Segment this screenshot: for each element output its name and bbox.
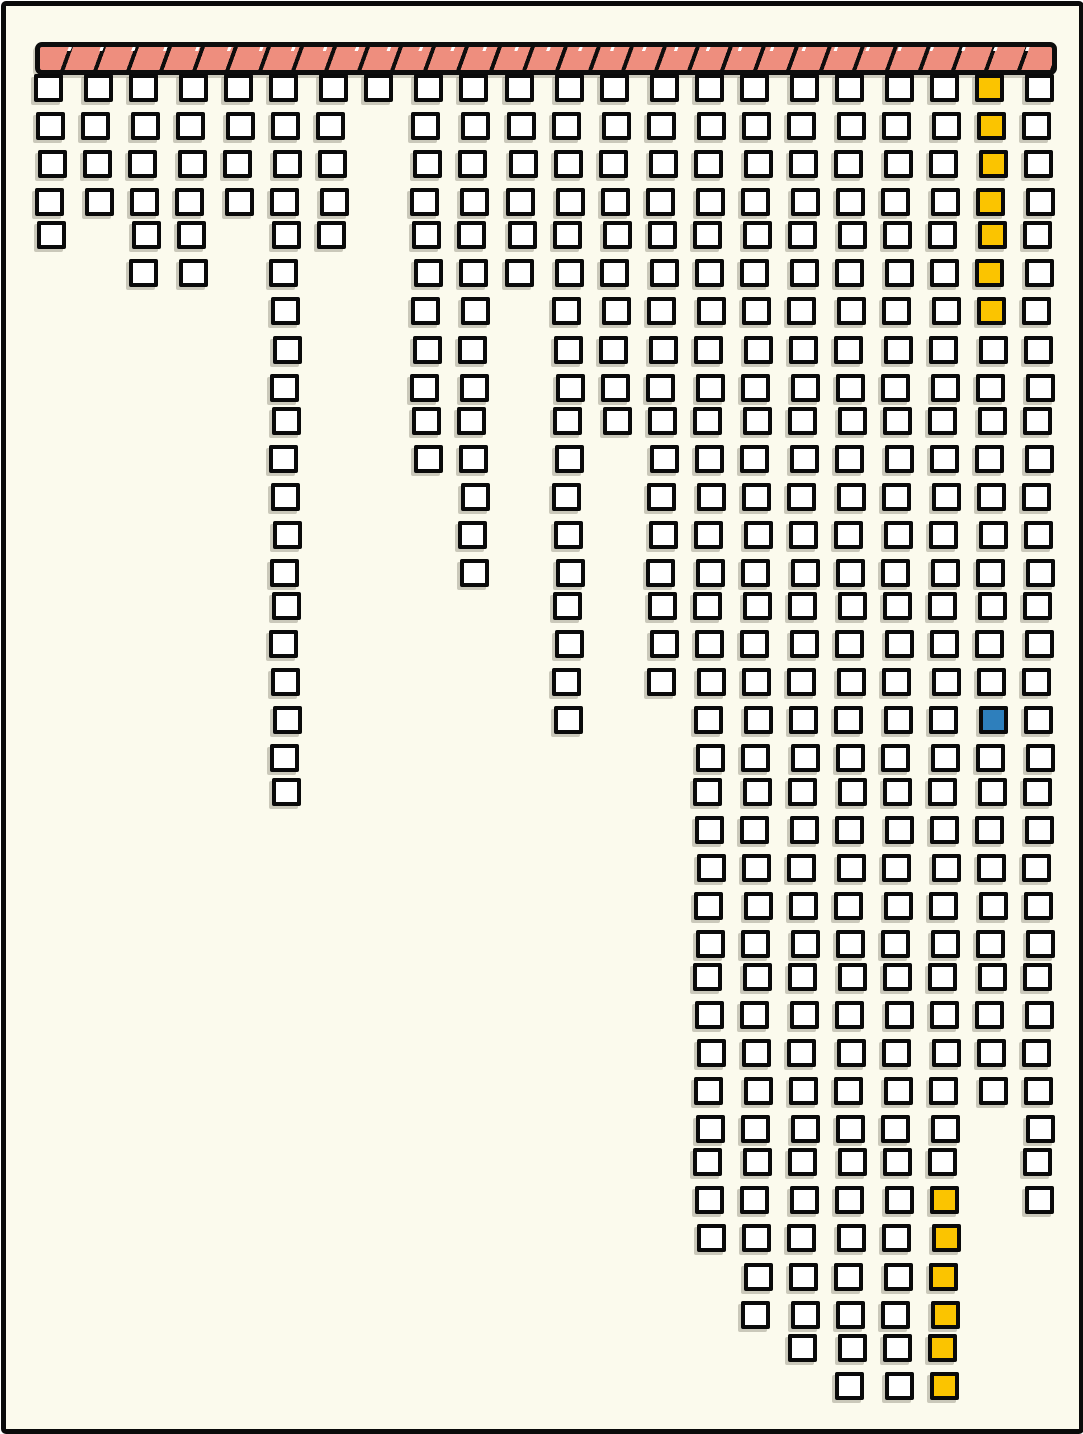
grid-square-yellow bbox=[931, 1301, 960, 1329]
grid-square bbox=[1025, 74, 1054, 102]
grid-square bbox=[412, 407, 441, 435]
grid-square-yellow bbox=[979, 150, 1008, 178]
grid-square bbox=[1026, 374, 1055, 402]
grid-square bbox=[1026, 188, 1055, 216]
grid-square bbox=[554, 150, 583, 178]
grid-square bbox=[977, 668, 1006, 696]
grid-square bbox=[741, 744, 770, 772]
grid-square bbox=[414, 445, 443, 473]
grid-square bbox=[457, 221, 486, 249]
grid-square bbox=[1023, 221, 1052, 249]
grid-square bbox=[697, 1039, 726, 1067]
grid-square bbox=[697, 112, 726, 140]
grid-square bbox=[460, 374, 489, 402]
grid-square bbox=[646, 374, 675, 402]
grid-square bbox=[1025, 1001, 1054, 1029]
grid-square bbox=[693, 963, 722, 991]
grid-square bbox=[882, 112, 911, 140]
grid-square bbox=[928, 1148, 957, 1176]
grid-square bbox=[1024, 336, 1053, 364]
grid-square bbox=[931, 559, 960, 587]
grid-square-yellow bbox=[930, 1186, 959, 1214]
striped-progress-bar bbox=[35, 42, 1057, 75]
grid-square bbox=[976, 744, 1005, 772]
grid-square bbox=[884, 336, 913, 364]
grid-square bbox=[697, 483, 726, 511]
grid-square bbox=[458, 521, 487, 549]
grid-square bbox=[835, 816, 864, 844]
grid-square bbox=[1026, 930, 1055, 958]
grid-square bbox=[272, 221, 301, 249]
grid-square bbox=[459, 445, 488, 473]
grid-square bbox=[931, 930, 960, 958]
grid-square bbox=[837, 112, 866, 140]
grid-square bbox=[552, 483, 581, 511]
grid-square bbox=[836, 559, 865, 587]
grid-square bbox=[881, 188, 910, 216]
grid-square bbox=[929, 336, 958, 364]
grid-square bbox=[884, 1263, 913, 1291]
grid-square bbox=[555, 630, 584, 658]
grid-square bbox=[457, 407, 486, 435]
grid-square bbox=[932, 112, 961, 140]
grid-square bbox=[835, 74, 864, 102]
grid-square bbox=[273, 336, 302, 364]
grid-square bbox=[932, 1039, 961, 1067]
grid-square bbox=[319, 74, 348, 102]
grid-square bbox=[930, 259, 959, 287]
grid-square bbox=[788, 221, 817, 249]
grid-square bbox=[884, 521, 913, 549]
grid-square bbox=[694, 521, 723, 549]
grid-square bbox=[742, 1039, 771, 1067]
grid-square bbox=[650, 259, 679, 287]
grid-square bbox=[885, 1186, 914, 1214]
grid-square bbox=[647, 112, 676, 140]
grid-square bbox=[1022, 112, 1051, 140]
grid-square bbox=[271, 483, 300, 511]
grid-square bbox=[740, 1186, 769, 1214]
grid-square bbox=[1022, 483, 1051, 511]
grid-square bbox=[928, 778, 957, 806]
grid-square bbox=[603, 221, 632, 249]
grid-square bbox=[743, 778, 772, 806]
grid-square bbox=[790, 630, 819, 658]
grid-square bbox=[1024, 1077, 1053, 1105]
grid-square bbox=[836, 1115, 865, 1143]
grid-square bbox=[459, 259, 488, 287]
grid-square bbox=[647, 668, 676, 696]
grid-square bbox=[978, 778, 1007, 806]
grid-square bbox=[459, 74, 488, 102]
grid-square bbox=[35, 188, 64, 216]
grid-square bbox=[791, 930, 820, 958]
grid-square bbox=[837, 668, 866, 696]
grid-square bbox=[882, 668, 911, 696]
grid-square bbox=[1022, 668, 1051, 696]
grid-square bbox=[412, 221, 441, 249]
grid-square bbox=[223, 150, 252, 178]
grid-square bbox=[979, 1077, 1008, 1105]
grid-square bbox=[269, 259, 298, 287]
grid-square bbox=[601, 188, 630, 216]
grid-square bbox=[885, 445, 914, 473]
grid-square bbox=[697, 668, 726, 696]
grid-square bbox=[881, 930, 910, 958]
grid-square bbox=[788, 1334, 817, 1362]
grid-square bbox=[788, 1148, 817, 1176]
grid-square bbox=[414, 259, 443, 287]
grid-square bbox=[84, 74, 113, 102]
grid-square bbox=[414, 74, 443, 102]
grid-square bbox=[273, 521, 302, 549]
grid-square bbox=[975, 630, 1004, 658]
grid-square bbox=[838, 592, 867, 620]
grid-square bbox=[505, 259, 534, 287]
grid-square bbox=[881, 744, 910, 772]
grid-square bbox=[130, 188, 159, 216]
grid-square bbox=[931, 744, 960, 772]
grid-square bbox=[834, 521, 863, 549]
grid-square bbox=[882, 297, 911, 325]
grid-square bbox=[552, 668, 581, 696]
grid-square bbox=[650, 74, 679, 102]
grid-square bbox=[790, 816, 819, 844]
grid-square bbox=[929, 1077, 958, 1105]
grid-square bbox=[791, 188, 820, 216]
grid-square bbox=[834, 1077, 863, 1105]
grid-square bbox=[461, 483, 490, 511]
grid-square bbox=[881, 374, 910, 402]
grid-square bbox=[788, 407, 817, 435]
grid-square bbox=[882, 1039, 911, 1067]
grid-square bbox=[1025, 816, 1054, 844]
grid-square bbox=[787, 483, 816, 511]
grid-square bbox=[977, 1039, 1006, 1067]
grid-square bbox=[270, 559, 299, 587]
grid-square bbox=[834, 336, 863, 364]
grid-square bbox=[978, 407, 1007, 435]
grid-square bbox=[976, 559, 1005, 587]
grid-square bbox=[81, 112, 110, 140]
grid-square bbox=[788, 963, 817, 991]
grid-square bbox=[838, 963, 867, 991]
grid-square bbox=[744, 521, 773, 549]
grid-square bbox=[834, 706, 863, 734]
grid-square bbox=[883, 1148, 912, 1176]
grid-square bbox=[741, 1115, 770, 1143]
grid-square bbox=[648, 592, 677, 620]
grid-square bbox=[552, 297, 581, 325]
grid-square bbox=[1026, 744, 1055, 772]
grid-square bbox=[928, 221, 957, 249]
grid-square bbox=[694, 1077, 723, 1105]
grid-square bbox=[835, 630, 864, 658]
grid-square bbox=[931, 1115, 960, 1143]
grid-square bbox=[649, 336, 678, 364]
grid-square bbox=[320, 188, 349, 216]
grid-square bbox=[694, 892, 723, 920]
grid-square bbox=[978, 592, 1007, 620]
grid-square bbox=[554, 336, 583, 364]
grid-square bbox=[458, 336, 487, 364]
grid-square bbox=[976, 374, 1005, 402]
grid-square bbox=[505, 74, 534, 102]
grid-square bbox=[787, 1224, 816, 1252]
grid-square bbox=[273, 706, 302, 734]
grid-square bbox=[647, 483, 676, 511]
grid-square bbox=[599, 336, 628, 364]
grid-square bbox=[1025, 445, 1054, 473]
grid-square bbox=[1022, 297, 1051, 325]
grid-square bbox=[696, 559, 725, 587]
grid-square bbox=[1023, 407, 1052, 435]
grid-square bbox=[882, 483, 911, 511]
grid-square bbox=[128, 150, 157, 178]
grid-square bbox=[742, 854, 771, 882]
grid-square bbox=[885, 1372, 914, 1400]
grid-square bbox=[743, 592, 772, 620]
grid-square bbox=[460, 559, 489, 587]
grid-square bbox=[835, 259, 864, 287]
grid-square bbox=[931, 374, 960, 402]
grid-square bbox=[38, 150, 67, 178]
grid-square bbox=[272, 778, 301, 806]
grid-square bbox=[975, 445, 1004, 473]
grid-square bbox=[1024, 706, 1053, 734]
grid-square bbox=[318, 150, 347, 178]
grid-square bbox=[838, 778, 867, 806]
grid-square bbox=[696, 188, 725, 216]
grid-square bbox=[835, 1186, 864, 1214]
grid-square bbox=[646, 188, 675, 216]
grid-square bbox=[837, 297, 866, 325]
grid-square bbox=[694, 336, 723, 364]
grid-square bbox=[790, 259, 819, 287]
grid-square bbox=[744, 1077, 773, 1105]
grid-square bbox=[789, 1077, 818, 1105]
grid-square bbox=[838, 221, 867, 249]
grid-square bbox=[697, 1224, 726, 1252]
grid-square bbox=[271, 297, 300, 325]
grid-square bbox=[884, 1077, 913, 1105]
grid-square bbox=[791, 374, 820, 402]
grid-square bbox=[930, 445, 959, 473]
grid-square bbox=[556, 374, 585, 402]
grid-square bbox=[1024, 892, 1053, 920]
grid-square bbox=[743, 1148, 772, 1176]
grid-square bbox=[979, 892, 1008, 920]
grid-square-yellow bbox=[976, 188, 1005, 216]
grid-square bbox=[176, 112, 205, 140]
grid-square bbox=[930, 1001, 959, 1029]
grid-square bbox=[836, 1301, 865, 1329]
grid-square bbox=[131, 112, 160, 140]
grid-square-yellow bbox=[932, 1224, 961, 1252]
grid-square bbox=[271, 112, 300, 140]
grid-square bbox=[885, 259, 914, 287]
grid-square bbox=[411, 297, 440, 325]
grid-square bbox=[977, 854, 1006, 882]
grid-square bbox=[693, 778, 722, 806]
grid-square bbox=[789, 150, 818, 178]
grid-square bbox=[179, 259, 208, 287]
grid-square bbox=[179, 74, 208, 102]
grid-square bbox=[837, 854, 866, 882]
grid-square bbox=[696, 1115, 725, 1143]
grid-square bbox=[696, 744, 725, 772]
grid-square bbox=[787, 112, 816, 140]
grid-square bbox=[272, 407, 301, 435]
grid-square bbox=[929, 892, 958, 920]
grid-square bbox=[1026, 559, 1055, 587]
grid-square bbox=[599, 150, 628, 178]
grid-square bbox=[603, 407, 632, 435]
grid-square bbox=[837, 483, 866, 511]
grid-square bbox=[1023, 1148, 1052, 1176]
grid-square bbox=[693, 221, 722, 249]
grid-square bbox=[411, 112, 440, 140]
grid-square bbox=[695, 445, 724, 473]
grid-square bbox=[787, 854, 816, 882]
grid-square bbox=[600, 74, 629, 102]
grid-square bbox=[695, 1186, 724, 1214]
grid-square bbox=[835, 1372, 864, 1400]
grid-square bbox=[976, 930, 1005, 958]
grid-square bbox=[883, 221, 912, 249]
grid-square bbox=[555, 74, 584, 102]
grid-square bbox=[883, 963, 912, 991]
grid-square bbox=[555, 445, 584, 473]
grid-square bbox=[885, 630, 914, 658]
grid-square-yellow bbox=[978, 221, 1007, 249]
grid-square bbox=[1026, 1115, 1055, 1143]
grid-square bbox=[744, 706, 773, 734]
grid-square bbox=[930, 74, 959, 102]
grid-square bbox=[835, 1001, 864, 1029]
grid-square bbox=[931, 188, 960, 216]
grid-square bbox=[883, 407, 912, 435]
grid-square bbox=[978, 963, 1007, 991]
grid-square bbox=[650, 630, 679, 658]
grid-square bbox=[975, 816, 1004, 844]
grid-square bbox=[742, 668, 771, 696]
grid-square bbox=[790, 1001, 819, 1029]
grid-square bbox=[1025, 1186, 1054, 1214]
grid-square bbox=[695, 259, 724, 287]
grid-square bbox=[553, 221, 582, 249]
grid-square bbox=[743, 221, 772, 249]
grid-square bbox=[695, 816, 724, 844]
grid-square bbox=[271, 668, 300, 696]
grid-square bbox=[602, 112, 631, 140]
grid-square bbox=[697, 297, 726, 325]
grid-square bbox=[1024, 150, 1053, 178]
grid-square bbox=[791, 559, 820, 587]
grid-square bbox=[601, 374, 630, 402]
grid-square bbox=[741, 559, 770, 587]
grid-square bbox=[882, 1224, 911, 1252]
grid-square bbox=[553, 592, 582, 620]
grid-square bbox=[410, 188, 439, 216]
grid-square bbox=[460, 188, 489, 216]
comic-panel bbox=[1, 1, 1083, 1434]
grid-square bbox=[883, 1334, 912, 1362]
grid-square bbox=[743, 963, 772, 991]
grid-square bbox=[740, 74, 769, 102]
grid-square-yellow bbox=[929, 1263, 958, 1291]
grid-square bbox=[742, 112, 771, 140]
grid-square bbox=[1023, 963, 1052, 991]
grid-square bbox=[789, 1263, 818, 1291]
grid-square bbox=[552, 112, 581, 140]
grid-square bbox=[458, 150, 487, 178]
grid-square bbox=[694, 150, 723, 178]
grid-square bbox=[975, 1001, 1004, 1029]
grid-square bbox=[36, 112, 65, 140]
grid-square bbox=[554, 521, 583, 549]
grid-square bbox=[649, 150, 678, 178]
grid-square bbox=[741, 188, 770, 216]
grid-square bbox=[553, 407, 582, 435]
grid-square bbox=[132, 221, 161, 249]
grid-square bbox=[556, 559, 585, 587]
grid-square bbox=[883, 778, 912, 806]
grid-square bbox=[836, 744, 865, 772]
grid-square bbox=[928, 407, 957, 435]
grid-square bbox=[272, 592, 301, 620]
grid-square bbox=[884, 150, 913, 178]
grid-square bbox=[740, 816, 769, 844]
grid-square bbox=[741, 374, 770, 402]
grid-square bbox=[838, 1148, 867, 1176]
grid-square bbox=[788, 592, 817, 620]
grid-square bbox=[693, 1148, 722, 1176]
grid-square bbox=[928, 592, 957, 620]
grid-square bbox=[928, 963, 957, 991]
grid-square bbox=[178, 150, 207, 178]
grid-square-blue bbox=[979, 706, 1008, 734]
grid-square bbox=[979, 521, 1008, 549]
grid-square bbox=[790, 74, 819, 102]
grid-square bbox=[175, 188, 204, 216]
grid-square bbox=[742, 297, 771, 325]
grid-square bbox=[930, 816, 959, 844]
grid-square bbox=[509, 150, 538, 178]
grid-square bbox=[744, 336, 773, 364]
grid-square bbox=[744, 150, 773, 178]
grid-square bbox=[740, 445, 769, 473]
grid-square bbox=[791, 1115, 820, 1143]
grid-square bbox=[506, 188, 535, 216]
grid-square bbox=[269, 445, 298, 473]
grid-square bbox=[413, 336, 442, 364]
grid-square bbox=[364, 74, 393, 102]
grid-square bbox=[742, 1224, 771, 1252]
grid-square bbox=[696, 374, 725, 402]
grid-square bbox=[744, 892, 773, 920]
grid-square bbox=[929, 521, 958, 549]
grid-square bbox=[693, 407, 722, 435]
grid-square bbox=[834, 1263, 863, 1291]
grid-square bbox=[650, 445, 679, 473]
grid-square bbox=[317, 221, 346, 249]
grid-square bbox=[881, 1115, 910, 1143]
grid-square bbox=[791, 744, 820, 772]
grid-square bbox=[838, 1334, 867, 1362]
grid-square bbox=[129, 74, 158, 102]
grid-square bbox=[695, 1001, 724, 1029]
